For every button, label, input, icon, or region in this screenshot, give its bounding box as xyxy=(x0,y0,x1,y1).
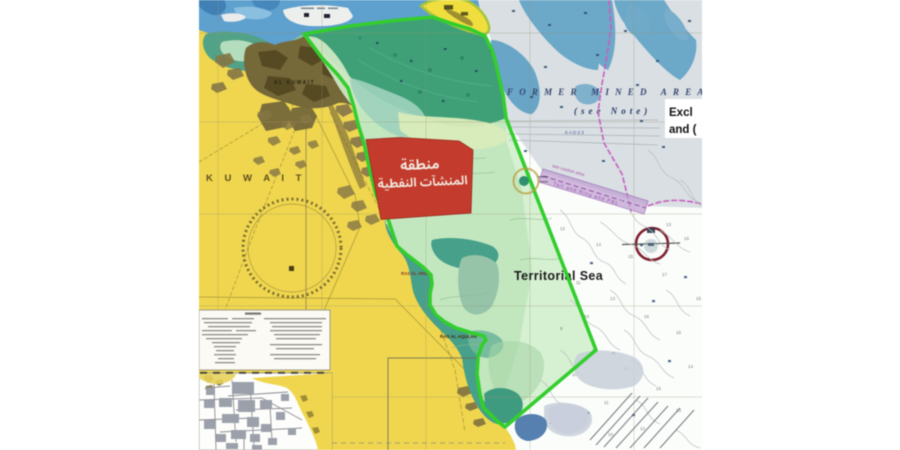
svg-text:and (: and ( xyxy=(669,124,697,136)
svg-text:16: 16 xyxy=(684,236,690,241)
svg-text:14: 14 xyxy=(596,242,602,247)
svg-text:(see Note): (see Note) xyxy=(574,106,651,116)
svg-text:18: 18 xyxy=(676,330,682,335)
svg-text:12: 12 xyxy=(560,226,566,231)
svg-text:15: 15 xyxy=(696,296,702,301)
svg-text:FORMER MINED AREA: FORMER MINED AREA xyxy=(506,87,710,97)
svg-text:12: 12 xyxy=(640,426,646,431)
svg-text:15: 15 xyxy=(628,254,634,259)
svg-text:17: 17 xyxy=(662,272,668,277)
svg-text:10: 10 xyxy=(608,432,614,437)
svg-text:11: 11 xyxy=(604,400,609,405)
svg-text:K A D 2 3: K A D 2 3 xyxy=(565,130,584,135)
svg-text:13: 13 xyxy=(610,296,616,301)
svg-text:16: 16 xyxy=(644,314,650,319)
svg-text:K U W A I T: K U W A I T xyxy=(206,173,306,184)
svg-text:11: 11 xyxy=(576,280,581,285)
svg-text:14: 14 xyxy=(688,364,694,369)
svg-text:13: 13 xyxy=(666,222,672,227)
svg-text:Excl: Excl xyxy=(669,107,693,119)
svg-text:AL KUWAIT: AL KUWAIT xyxy=(274,80,315,86)
svg-text:15: 15 xyxy=(656,386,662,391)
svg-text:RAS AL AQULAH: RAS AL AQULAH xyxy=(440,334,477,339)
svg-text:Territorial Sea: Territorial Sea xyxy=(514,269,604,283)
